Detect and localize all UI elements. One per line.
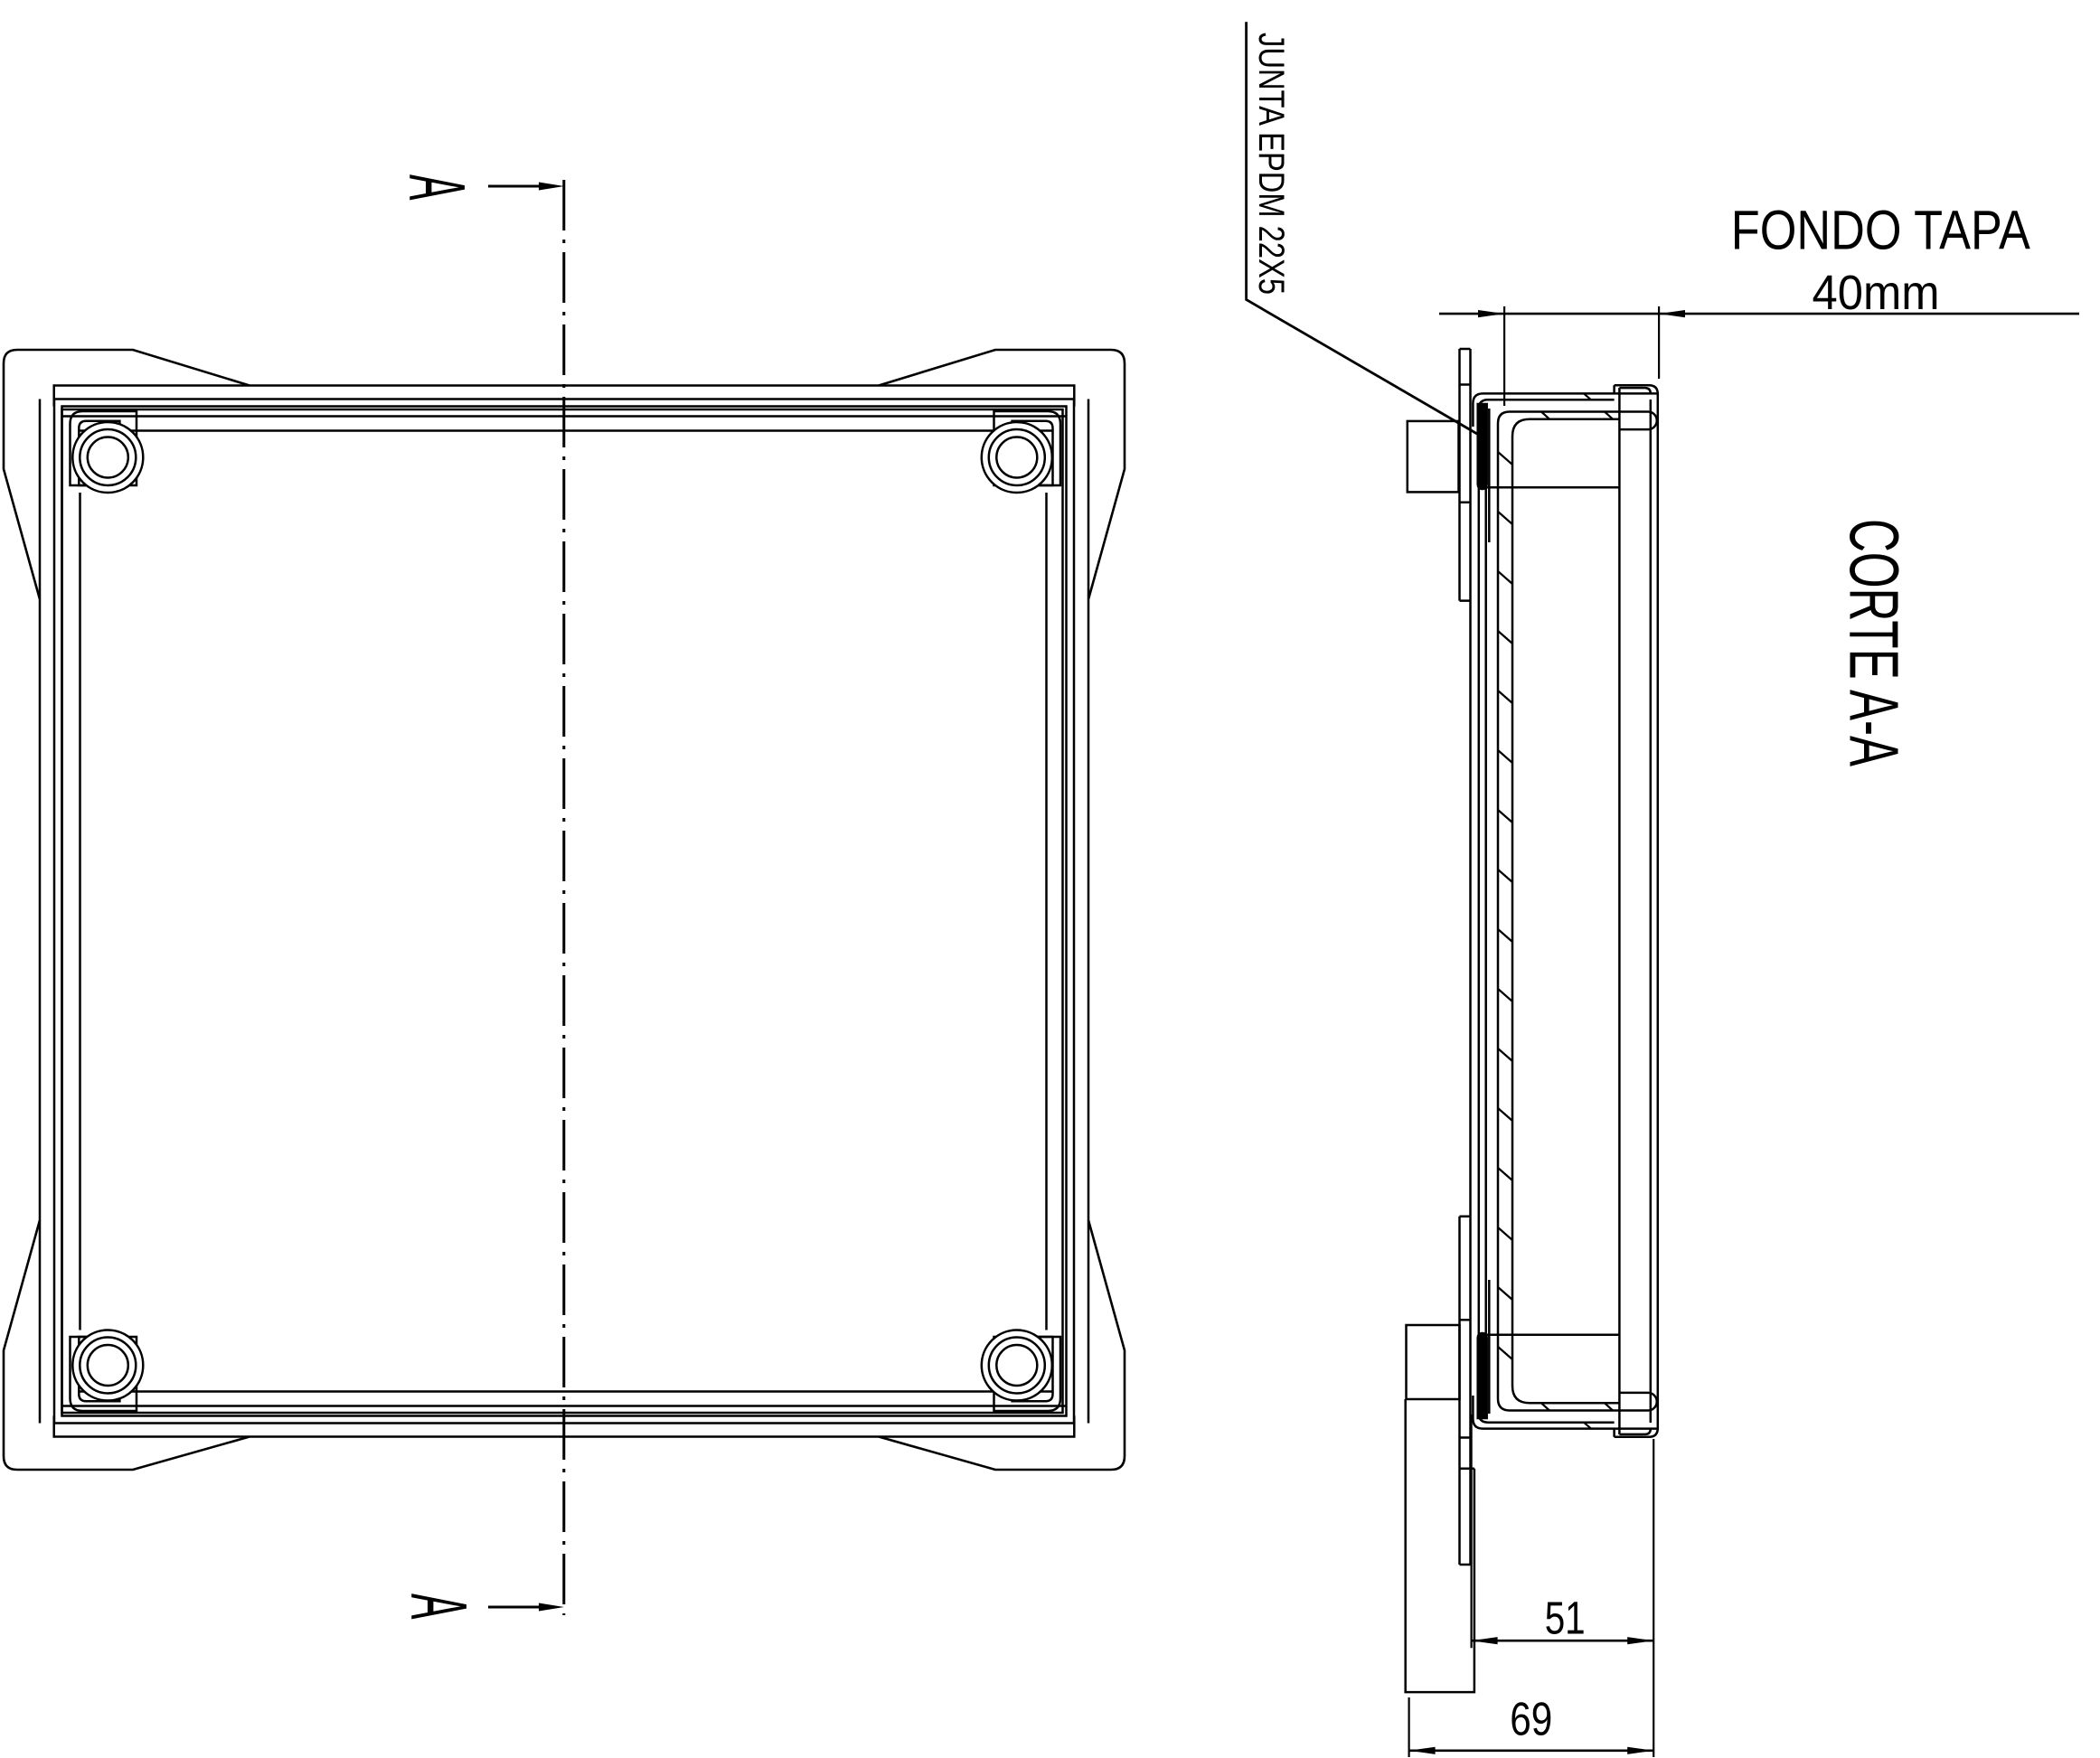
svg-text:A: A [394, 1593, 484, 1620]
svg-text:JUNTA EPDM 22X5: JUNTA EPDM 22X5 [1251, 33, 1291, 295]
svg-text:51: 51 [1545, 1593, 1586, 1644]
svg-text:CORTE A-A: CORTE A-A [1835, 519, 1913, 766]
svg-text:A: A [392, 174, 482, 201]
svg-text:40mm: 40mm [1813, 266, 1940, 320]
svg-text:69: 69 [1510, 1693, 1552, 1745]
svg-text:FONDO TAPA: FONDO TAPA [1731, 199, 2030, 260]
